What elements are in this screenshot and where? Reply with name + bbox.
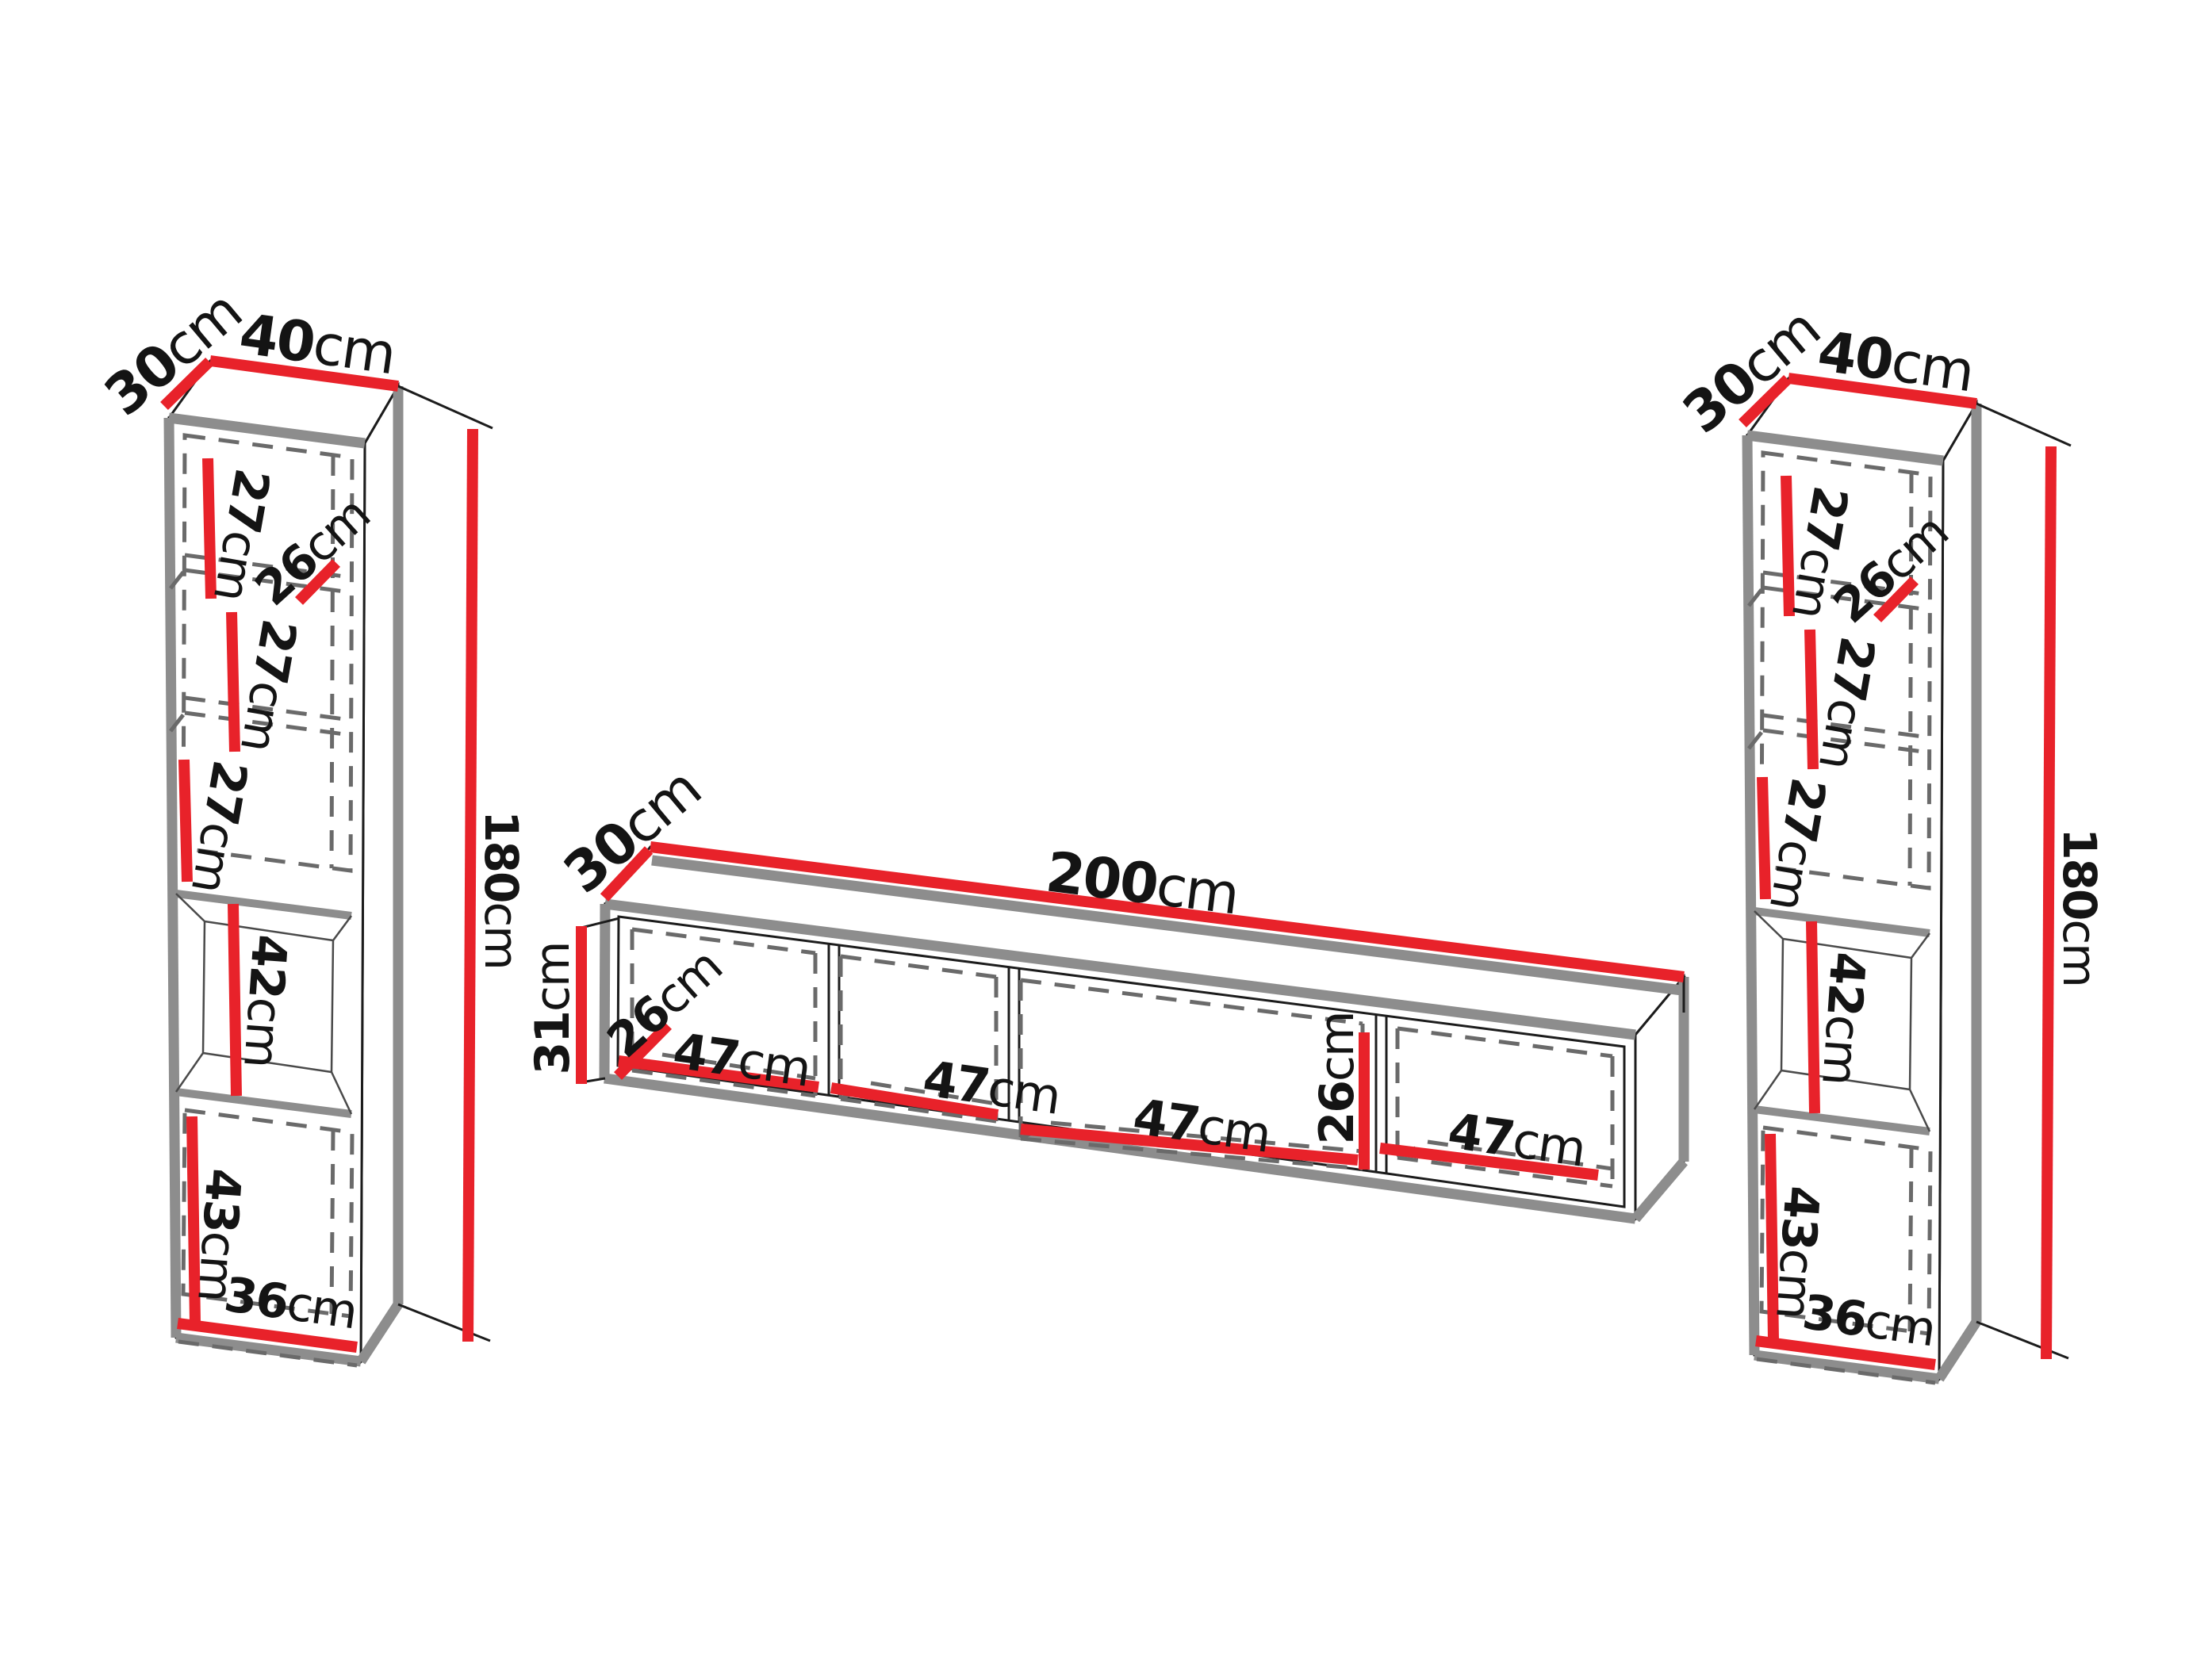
dim-unit: cm: [734, 1031, 814, 1098]
dim-unit: cm: [1509, 1111, 1589, 1178]
furniture-dimension-diagram: 30cm 40cm 180cm 27cm 26cm 27cm 27cm 42cm…: [0, 0, 2212, 1658]
dim-value: 26: [1309, 1082, 1365, 1145]
dim-unit: cm: [1888, 329, 1977, 404]
dim-value: 36: [220, 1267, 290, 1331]
dim-tv-stand-inner-height: 26cm: [1313, 1013, 1361, 1145]
dim-unit: cm: [180, 818, 247, 896]
dim-value: 47: [669, 1021, 742, 1088]
dim-unit: cm: [232, 996, 293, 1069]
dim-unit: cm: [2053, 919, 2107, 986]
dim-value: 180: [474, 810, 528, 902]
dim-value: 36: [1799, 1285, 1869, 1348]
dim-unit: cm: [1758, 836, 1825, 913]
dim-unit: cm: [283, 1276, 359, 1340]
dim-right-cabinet-height: 180cm: [2057, 828, 2103, 986]
dim-right-cabinet-open-niche: 42cm: [1815, 951, 1871, 1086]
dim-unit: cm: [1309, 1013, 1365, 1082]
dim-value: 40: [1814, 319, 1896, 393]
dim-unit: cm: [1861, 1293, 1938, 1357]
dim-value: 27: [1792, 482, 1858, 553]
dim-value: 27: [192, 756, 258, 828]
dim-value: 200: [1043, 840, 1161, 917]
furniture-line-art: [0, 0, 2212, 1658]
dim-unit: cm: [984, 1059, 1064, 1126]
dim-unit: cm: [1811, 1013, 1871, 1086]
dim-unit: cm: [1153, 853, 1242, 928]
dim-value: 43: [1769, 1184, 1829, 1250]
dim-value: 40: [236, 301, 318, 376]
dim-unit: cm: [1808, 695, 1874, 772]
dim-value: 27: [214, 465, 280, 536]
dim-value: 43: [191, 1166, 251, 1233]
dim-unit: cm: [309, 312, 399, 387]
dim-value: 42: [237, 932, 297, 999]
dim-value: 47: [1129, 1087, 1202, 1154]
dim-tv-stand-height: 31cm: [529, 943, 577, 1075]
dim-value: 27: [1770, 774, 1836, 845]
dim-value: 31: [525, 1012, 581, 1075]
dim-value: 47: [919, 1049, 992, 1116]
dim-value: 27: [241, 615, 307, 687]
dim-value: 180: [2053, 828, 2107, 919]
dim-value: 27: [1819, 633, 1885, 704]
dim-unit: cm: [525, 943, 581, 1012]
dim-unit: cm: [229, 677, 296, 755]
dim-left-cabinet-height: 180cm: [478, 810, 524, 968]
dim-left-cabinet-open-niche: 42cm: [236, 933, 293, 1069]
dim-value: 42: [1815, 950, 1875, 1017]
dim-unit: cm: [1194, 1097, 1274, 1164]
dim-value: 47: [1444, 1101, 1517, 1168]
dim-unit: cm: [474, 902, 528, 968]
